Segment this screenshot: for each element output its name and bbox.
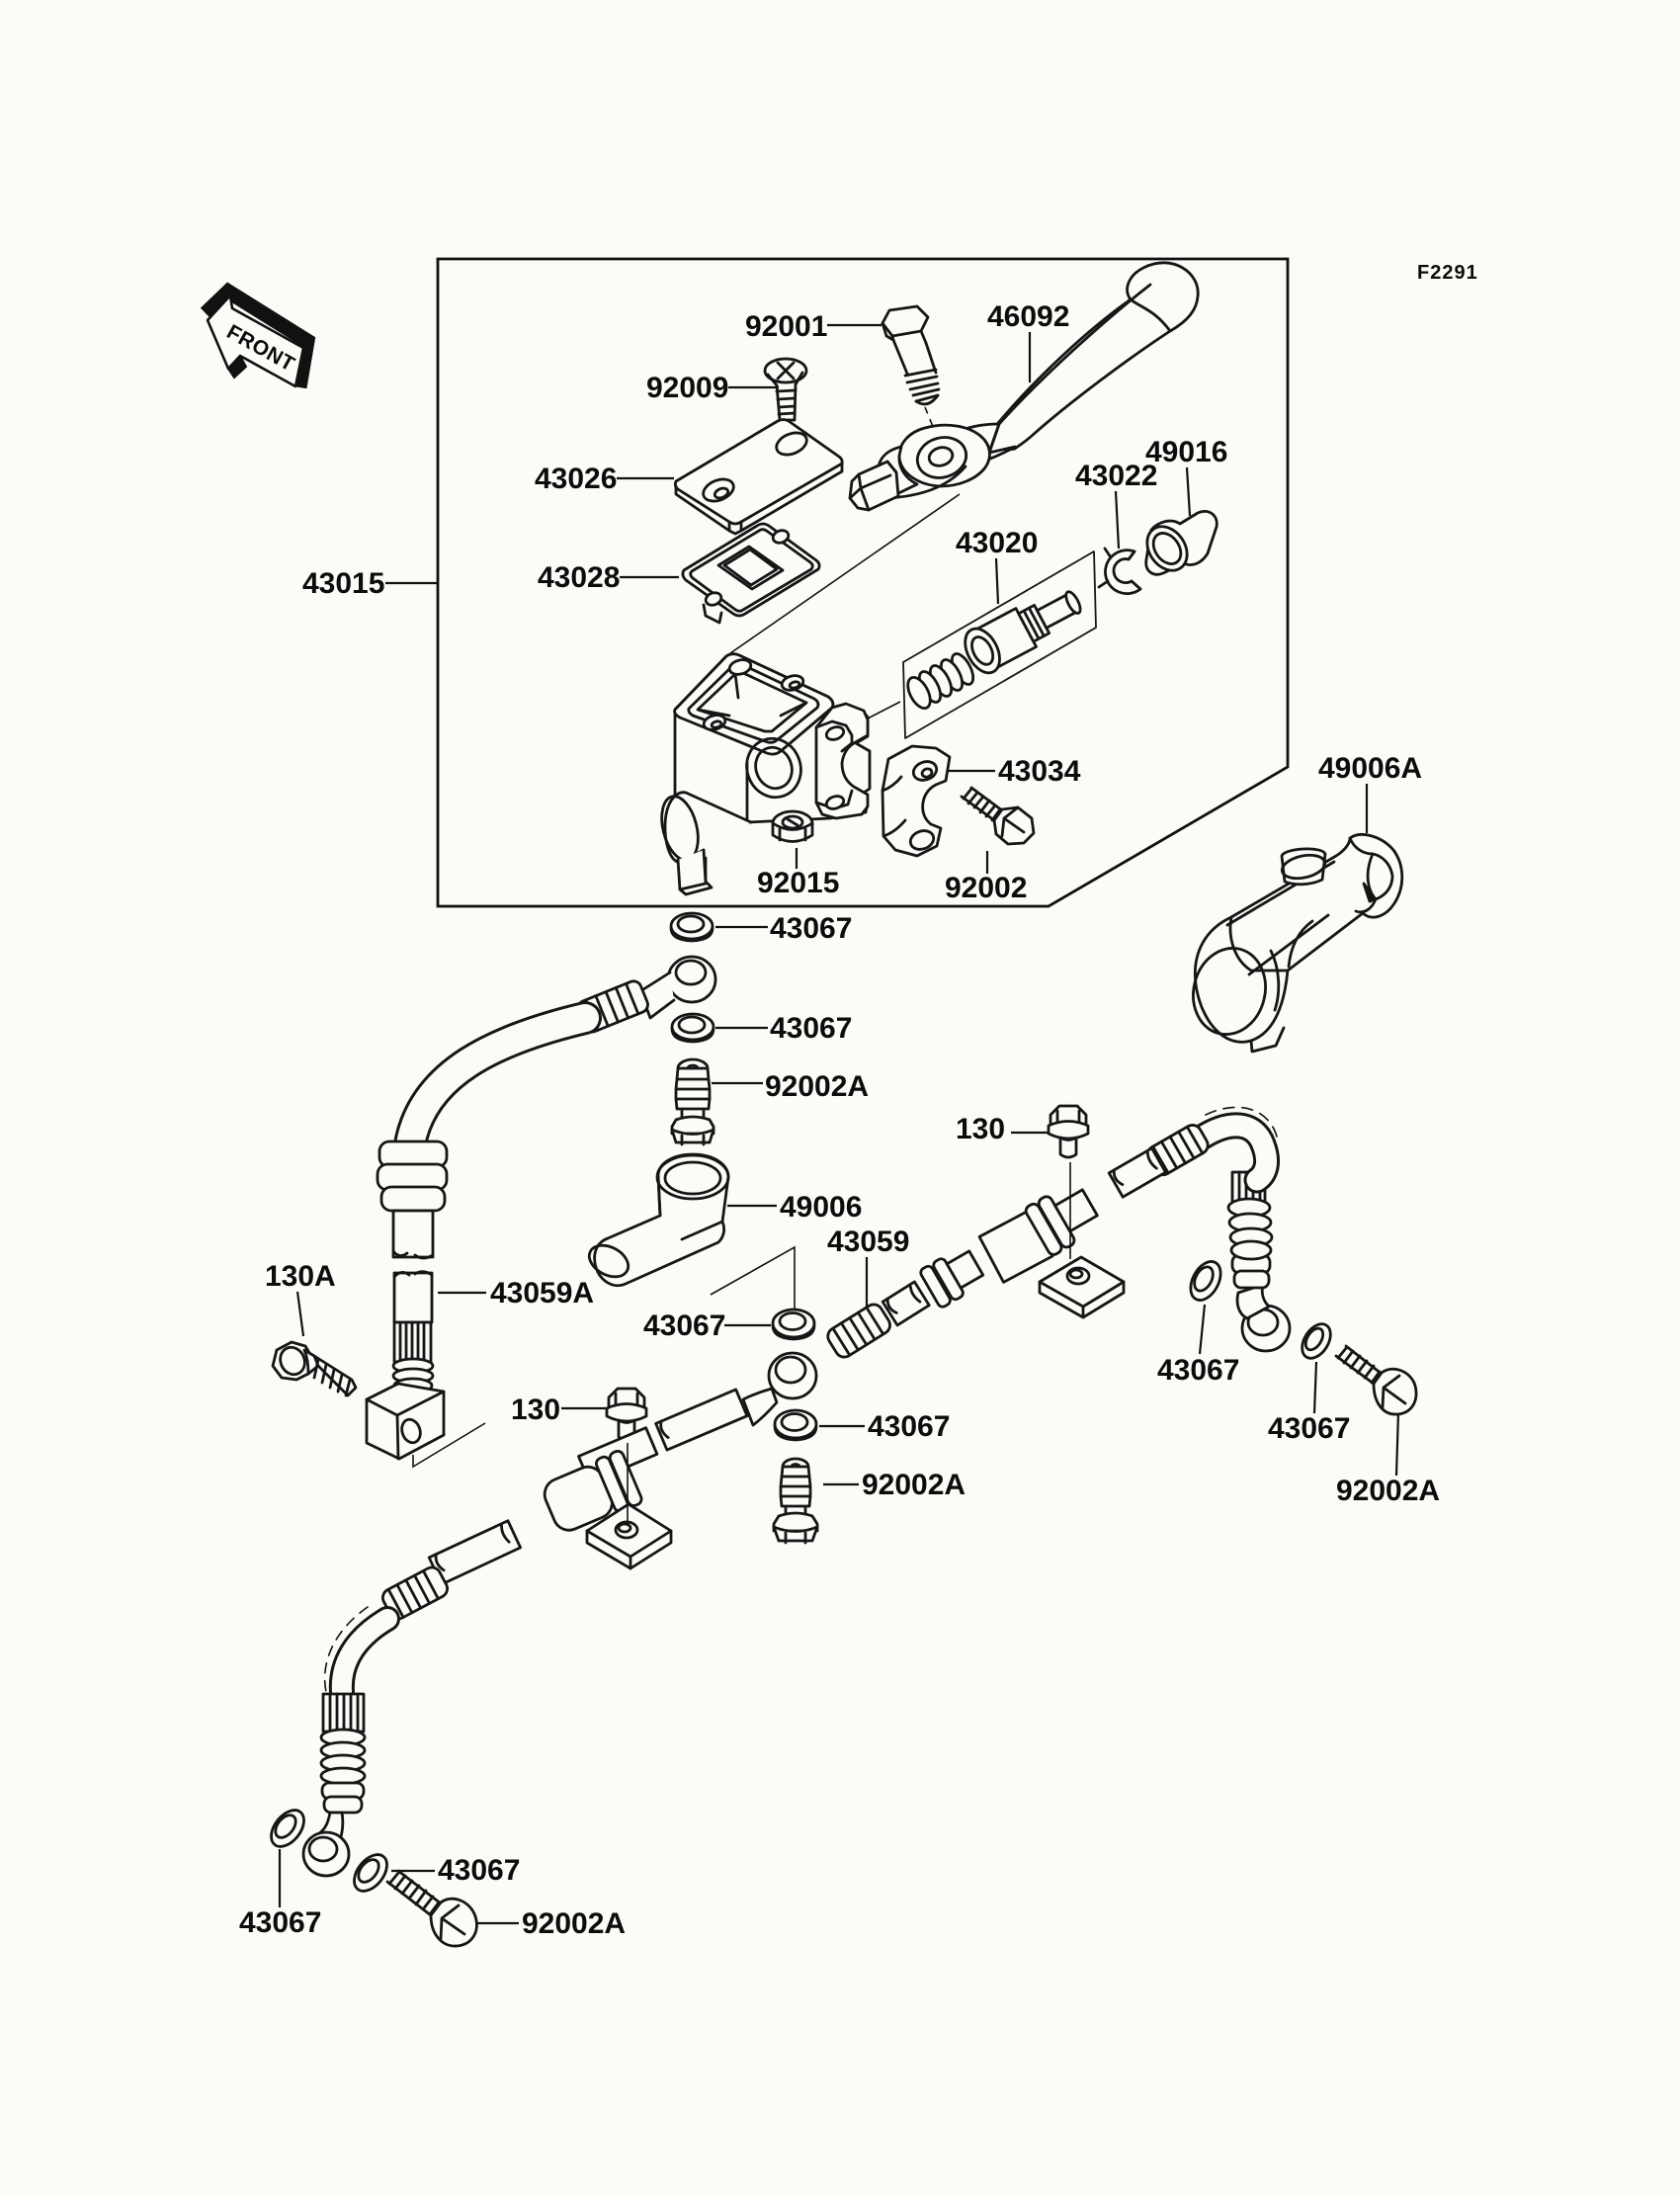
svg-text:130A: 130A (265, 1260, 336, 1293)
svg-text:F2291: F2291 (1417, 262, 1478, 284)
svg-text:43067: 43067 (239, 1906, 321, 1939)
svg-text:43028: 43028 (538, 561, 620, 594)
svg-text:92009: 92009 (646, 372, 728, 404)
svg-text:92001: 92001 (745, 310, 827, 343)
svg-text:130: 130 (956, 1113, 1005, 1145)
svg-text:46092: 46092 (987, 300, 1069, 333)
svg-text:43067: 43067 (770, 1012, 852, 1045)
svg-text:130: 130 (511, 1394, 560, 1426)
svg-text:49006A: 49006A (1318, 752, 1422, 785)
svg-text:43022: 43022 (1075, 460, 1157, 492)
svg-text:92002: 92002 (945, 872, 1027, 904)
svg-text:43034: 43034 (998, 755, 1081, 788)
svg-text:49006: 49006 (780, 1191, 862, 1224)
svg-text:43067: 43067 (1268, 1412, 1350, 1445)
svg-text:49016: 49016 (1145, 436, 1227, 468)
svg-text:43067: 43067 (1157, 1354, 1239, 1387)
svg-text:92002A: 92002A (765, 1070, 869, 1103)
svg-text:43067: 43067 (770, 912, 852, 945)
svg-text:43059: 43059 (827, 1225, 909, 1258)
svg-text:43020: 43020 (956, 527, 1038, 559)
svg-text:43067: 43067 (438, 1854, 520, 1887)
svg-text:43067: 43067 (643, 1310, 725, 1342)
svg-text:43067: 43067 (868, 1410, 950, 1443)
svg-text:92002A: 92002A (1336, 1475, 1440, 1507)
svg-text:43015: 43015 (302, 567, 384, 600)
svg-text:43026: 43026 (535, 463, 617, 495)
svg-text:92002A: 92002A (862, 1469, 966, 1501)
svg-text:92015: 92015 (757, 867, 839, 899)
svg-text:92002A: 92002A (522, 1907, 626, 1940)
svg-text:43059A: 43059A (490, 1277, 594, 1310)
